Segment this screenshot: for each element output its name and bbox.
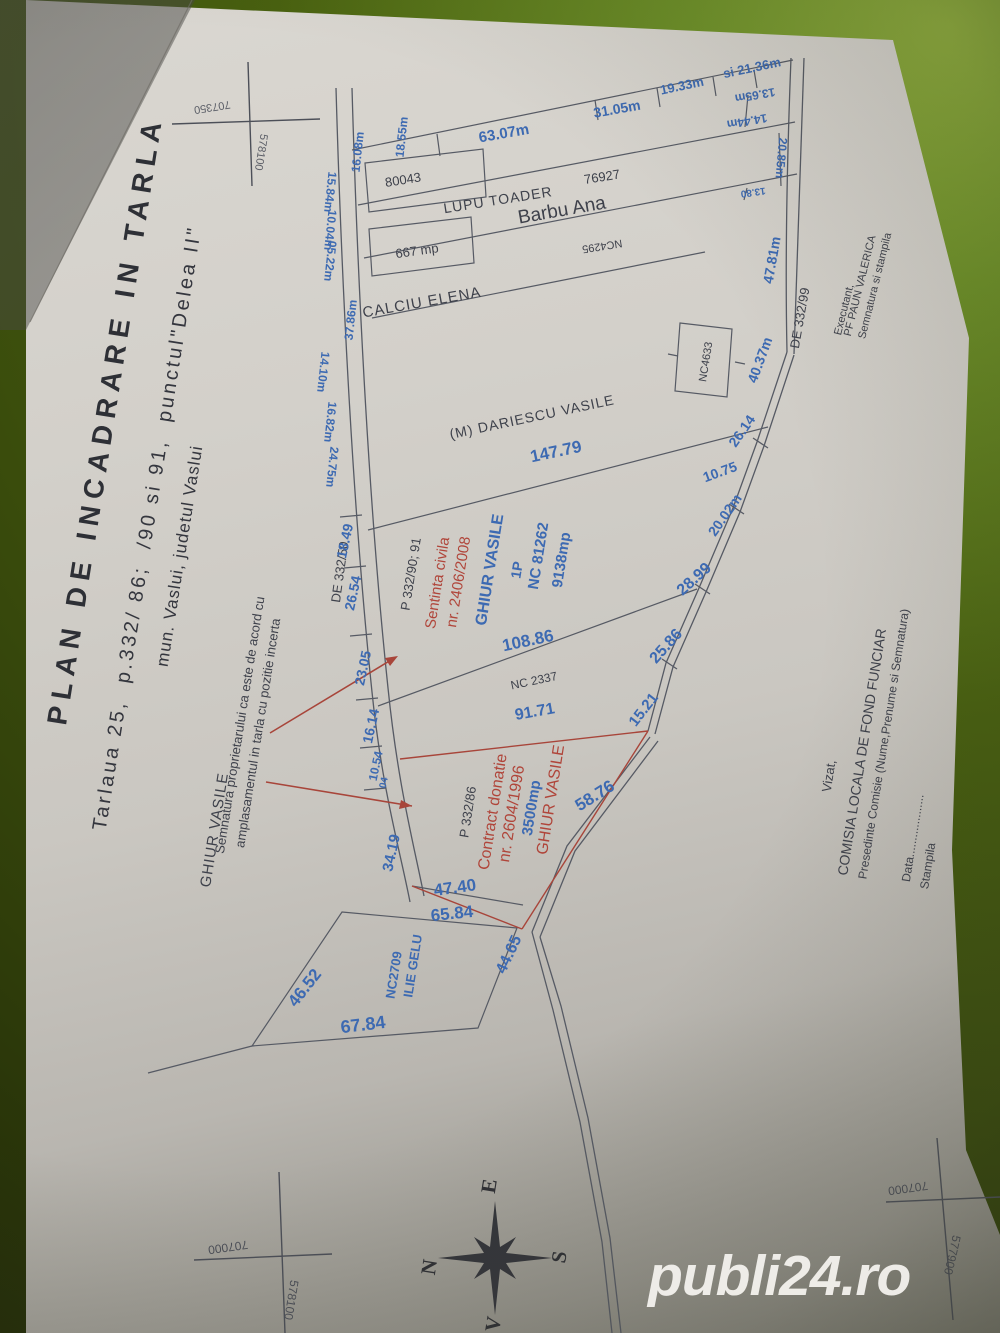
photo-of-cadastral-plan: PLAN DE INCADRARE IN TARLA Tarlaua 25, p…	[0, 0, 1000, 1333]
road-de-332-99	[532, 58, 804, 1333]
compass-west-label: V	[481, 1315, 505, 1333]
compass-north-label: N	[417, 1258, 441, 1276]
compass-star	[438, 1201, 552, 1315]
compass-rose	[438, 1201, 552, 1315]
dim-13-80: 13.80	[740, 184, 766, 198]
sentinta-floor-label: 1P	[508, 560, 525, 579]
dim-20-85m: 20.85m	[773, 137, 789, 179]
plan-drawing: PLAN DE INCADRARE IN TARLA Tarlaua 25, p…	[0, 0, 1000, 1333]
publi24-watermark: publi24.ro	[648, 1243, 1000, 1309]
top-parcel-strip	[352, 60, 797, 318]
sheet-seam	[30, 0, 192, 322]
dim-04: 04	[379, 776, 392, 789]
red-annotation-arrows	[266, 656, 412, 809]
